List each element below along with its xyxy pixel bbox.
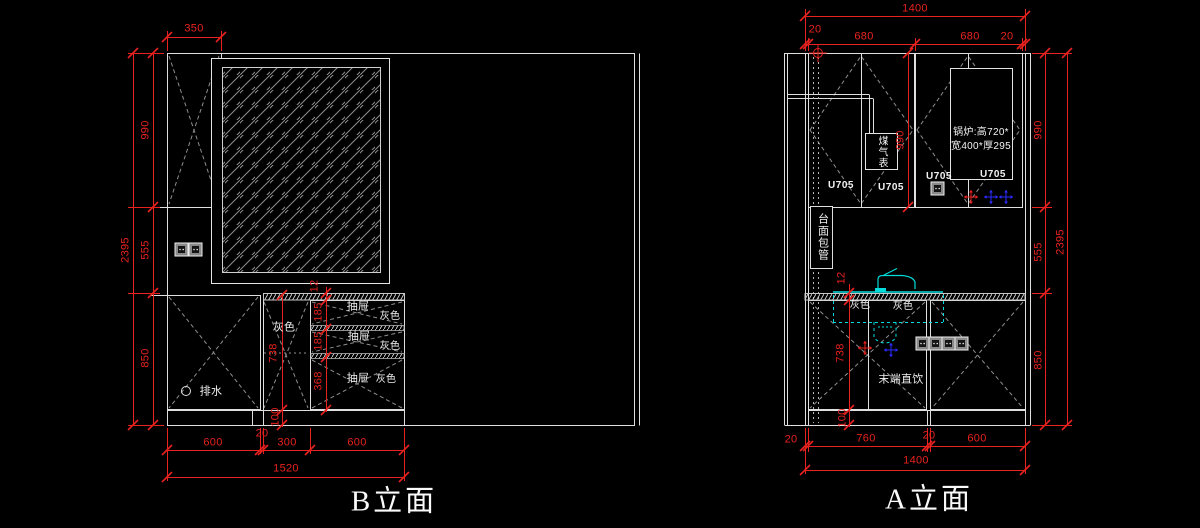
cold-water-point-icon bbox=[984, 190, 998, 204]
a-countertop bbox=[805, 294, 1025, 301]
a-boiler-spec-line2: 宽400*厚295 bbox=[951, 142, 1011, 152]
b-elevation-title: B立面 bbox=[351, 488, 437, 517]
a-dim-bottom-2: 760 bbox=[856, 434, 875, 445]
b-dim-toe-kick: 100 bbox=[271, 407, 282, 426]
b-drawer1-label: 抽屉 bbox=[347, 302, 370, 313]
a-dim-top-4: 20 bbox=[1001, 32, 1014, 43]
b-dim-drawer2: 185 bbox=[314, 331, 325, 350]
a-dim-top-2: 680 bbox=[854, 32, 873, 43]
b-double-socket-icon bbox=[175, 243, 202, 256]
b-dim-bottom-4: 600 bbox=[347, 438, 366, 449]
a-dim-base-height: 850 bbox=[1034, 350, 1045, 369]
a-elevation-title: A立面 bbox=[885, 486, 973, 515]
a-dimensions bbox=[800, 9, 1072, 475]
b-dim-total-width: 1520 bbox=[273, 464, 299, 475]
a-dim-toe-kick: 100 bbox=[838, 408, 849, 427]
b-label-gray: 灰色 bbox=[273, 323, 296, 334]
a-label-pipe-boxing: 台面包管 bbox=[817, 213, 828, 261]
a-hinge-code-1: U705 bbox=[828, 181, 854, 191]
b-drawer2-color: 灰色 bbox=[380, 342, 401, 352]
b-dim-counter-thickness: 12 bbox=[310, 280, 321, 293]
a-dim-top-3: 680 bbox=[960, 32, 979, 43]
a-dim-top-total: 1400 bbox=[902, 4, 928, 15]
a-hinge-code-2: U705 bbox=[878, 183, 904, 193]
b-drawer1-color: 灰色 bbox=[380, 312, 401, 322]
a-dim-carcass-height: 738 bbox=[836, 343, 847, 362]
b-dim-drawer3: 368 bbox=[314, 371, 325, 390]
a-label-gray-1: 灰色 bbox=[850, 301, 871, 311]
a-dim-mid-height: 990 bbox=[896, 130, 907, 149]
boiler-outline bbox=[951, 69, 1013, 180]
a-label-gray-2: 灰色 bbox=[893, 302, 914, 312]
a-dim-counter-thickness: 12 bbox=[837, 272, 848, 285]
a-dim-bottom-3: 20 bbox=[923, 431, 936, 442]
b-dim-total-height: 2395 bbox=[121, 237, 132, 263]
b-dim-splash-height: 555 bbox=[141, 240, 152, 259]
gas-point-icon bbox=[809, 44, 827, 62]
b-dim-bottom-1: 600 bbox=[203, 438, 222, 449]
a-dim-bottom-1: 20 bbox=[785, 435, 798, 446]
hot-water-point-icon bbox=[858, 341, 872, 355]
a-label-drinking-water: 末端直饮 bbox=[878, 375, 923, 386]
a-dim-wallcab-height: 990 bbox=[1034, 120, 1045, 139]
b-drawer2-label: 抽屉 bbox=[348, 332, 371, 343]
b-glass-window bbox=[212, 59, 390, 284]
cold-water-point-icon bbox=[884, 343, 898, 357]
a-label-gas-meter: 煤气表 bbox=[876, 136, 886, 169]
a-boiler-spec-line1: 锅炉:高720* bbox=[953, 128, 1009, 138]
b-dim-bottom-2: 20 bbox=[256, 429, 269, 440]
b-dim-top-width: 350 bbox=[184, 24, 203, 35]
faucet-icon bbox=[875, 269, 915, 293]
a-dim-bottom-4: 600 bbox=[967, 434, 986, 445]
b-drawer3-label: 抽屉 bbox=[347, 374, 370, 385]
a-dim-total-height: 2395 bbox=[1056, 229, 1067, 255]
b-dim-bottom-3: 300 bbox=[277, 438, 296, 449]
a-dim-splash-height: 555 bbox=[1034, 242, 1045, 261]
b-dim-carcass-height: 738 bbox=[269, 343, 280, 362]
b-dim-drawer1: 185 bbox=[314, 302, 325, 321]
a-hinge-code-4: U705 bbox=[980, 170, 1006, 180]
cad-linework bbox=[0, 0, 1200, 528]
a-dim-top-1: 20 bbox=[809, 25, 822, 36]
a-hinge-code-3: U705 bbox=[926, 172, 952, 182]
b-label-drain: 排水 bbox=[200, 387, 223, 398]
b-dim-base-height: 850 bbox=[141, 348, 152, 367]
b-drawer3-color: 灰色 bbox=[376, 375, 397, 385]
cold-water-point-icon bbox=[999, 190, 1013, 204]
cad-canvas: 350 2395 990 555 850 12 185 185 368 738 … bbox=[0, 0, 1200, 528]
a-dim-total-width: 1400 bbox=[903, 456, 929, 467]
b-dim-wallcab-height: 990 bbox=[141, 120, 152, 139]
